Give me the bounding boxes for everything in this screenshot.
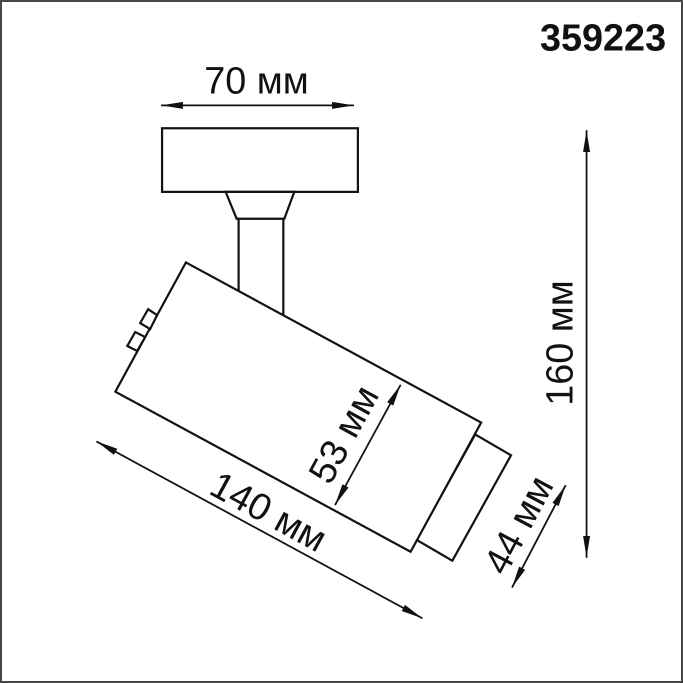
diagram-canvas: 359223 70 мм 160 мм 53 мм 140 мм 44 мм	[2, 2, 681, 681]
dim-label-overall-height: 160 мм	[540, 280, 582, 405]
product-dimension-diagram: 359223 70 мм 160 мм 53 мм 140 мм 44 мм	[0, 0, 683, 683]
spotlight-fixture-drawing	[115, 128, 511, 560]
ceiling-plate	[162, 128, 358, 192]
product-code-label: 359223	[540, 18, 666, 60]
dim-label-plate-width: 70 мм	[204, 60, 308, 102]
mounting-cone	[226, 192, 295, 219]
